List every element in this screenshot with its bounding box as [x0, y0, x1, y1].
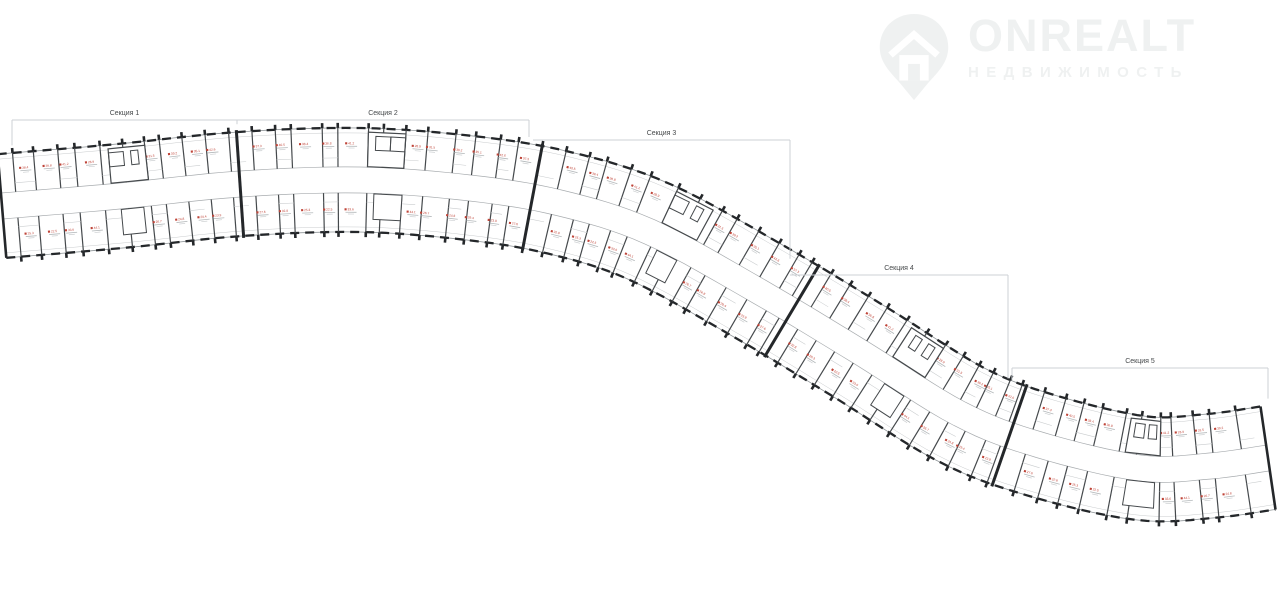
- floor-plan-page: ONREALT НЕДВИЖИМОСТЬ 38.425.336.822.541.…: [0, 0, 1280, 590]
- section-label: Секция 3: [647, 130, 677, 137]
- svg-text:33.6: 33.6: [348, 207, 354, 211]
- svg-text:37.3: 37.3: [255, 144, 262, 148]
- svg-text:33.6: 33.6: [1165, 497, 1172, 501]
- stair-elevator-core: [108, 145, 148, 183]
- svg-text:26.7: 26.7: [1203, 494, 1210, 499]
- svg-text:25.3: 25.3: [27, 231, 34, 236]
- svg-text:44.1: 44.1: [1183, 496, 1190, 501]
- svg-text:35.1: 35.1: [475, 150, 482, 155]
- svg-text:25.3: 25.3: [304, 208, 311, 212]
- section-bracket: Секция 5: [1012, 358, 1268, 399]
- svg-text:26.7: 26.7: [423, 211, 430, 216]
- secondary-core: [373, 194, 402, 221]
- svg-text:28.9: 28.9: [415, 144, 422, 148]
- svg-text:24.8: 24.8: [1225, 491, 1232, 496]
- svg-text:42.6: 42.6: [209, 147, 216, 152]
- svg-text:28.9: 28.9: [88, 160, 95, 165]
- secondary-core: [1123, 480, 1155, 509]
- svg-text:31.5: 31.5: [148, 154, 155, 159]
- svg-text:41.2: 41.2: [62, 162, 69, 167]
- svg-text:31.5: 31.5: [1198, 428, 1205, 433]
- svg-text:41.2: 41.2: [1163, 431, 1170, 435]
- svg-text:39.2: 39.2: [171, 151, 178, 156]
- section-label: Секция 5: [1125, 358, 1155, 365]
- svg-text:28.9: 28.9: [1178, 430, 1185, 435]
- svg-text:38.4: 38.4: [302, 142, 309, 146]
- svg-text:32.8: 32.8: [282, 209, 289, 213]
- svg-text:38.4: 38.4: [22, 165, 29, 170]
- svg-text:39.2: 39.2: [456, 148, 463, 153]
- svg-text:22.5: 22.5: [51, 229, 58, 234]
- svg-text:31.5: 31.5: [429, 145, 436, 150]
- svg-text:24.8: 24.8: [178, 217, 185, 222]
- svg-text:41.2: 41.2: [348, 141, 354, 145]
- svg-text:22.5: 22.5: [326, 207, 332, 211]
- svg-text:44.1: 44.1: [409, 210, 416, 214]
- svg-text:23.9: 23.9: [215, 213, 222, 218]
- svg-text:29.4: 29.4: [200, 214, 207, 219]
- section-label: Секция 1: [110, 110, 140, 117]
- svg-text:26.7: 26.7: [155, 219, 162, 224]
- svg-text:29.4: 29.4: [468, 215, 475, 220]
- svg-text:44.1: 44.1: [93, 225, 100, 230]
- svg-text:24.8: 24.8: [449, 213, 456, 218]
- svg-text:33.6: 33.6: [68, 228, 75, 233]
- svg-text:40.5: 40.5: [279, 143, 286, 147]
- svg-text:39.2: 39.2: [1217, 426, 1224, 431]
- section-label: Секция 2: [368, 110, 398, 117]
- floor-plan-svg: 38.425.336.822.541.233.628.944.131.526.7…: [0, 0, 1280, 590]
- secondary-core: [121, 207, 146, 235]
- svg-text:36.8: 36.8: [45, 163, 52, 168]
- svg-text:36.8: 36.8: [325, 141, 331, 145]
- svg-text:27.6: 27.6: [259, 210, 266, 214]
- svg-text:35.1: 35.1: [194, 149, 201, 154]
- section-label: Секция 4: [884, 265, 914, 272]
